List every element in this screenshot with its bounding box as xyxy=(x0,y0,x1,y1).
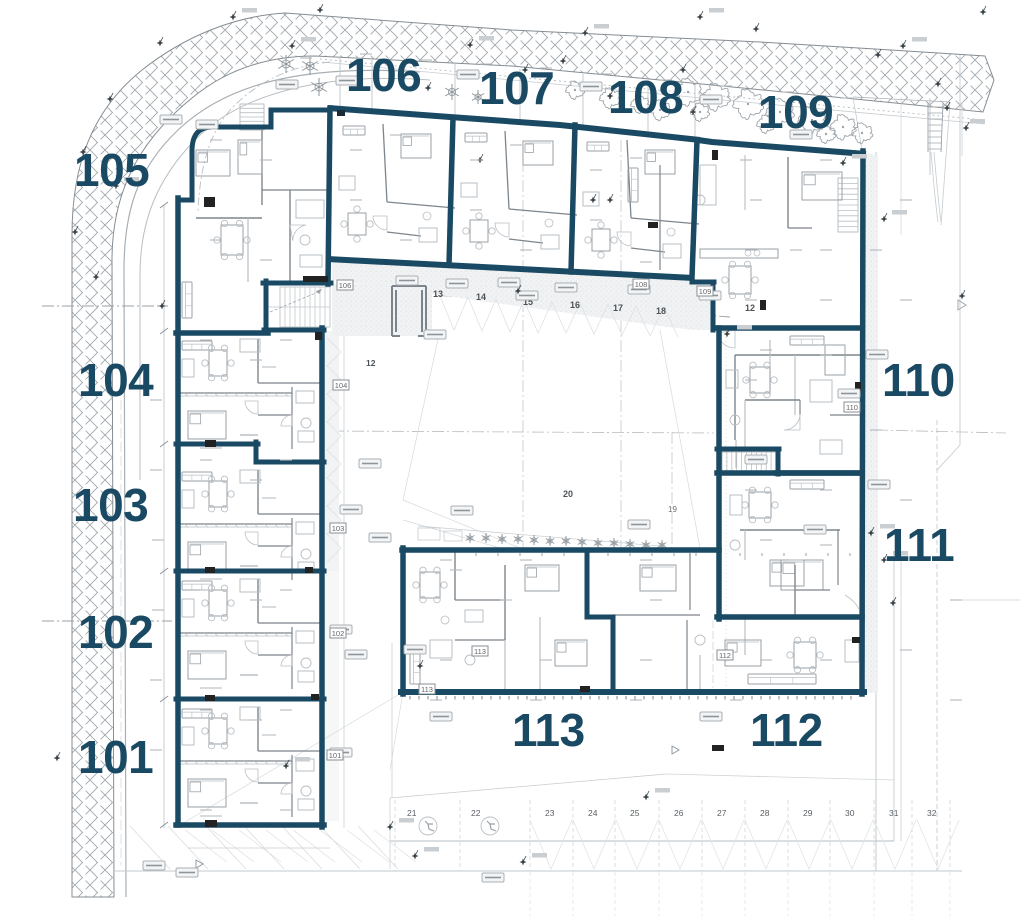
svg-text:113: 113 xyxy=(474,647,486,656)
svg-text:25: 25 xyxy=(630,808,640,818)
svg-text:108: 108 xyxy=(635,280,648,289)
svg-text:18: 18 xyxy=(656,306,666,316)
svg-text:103: 103 xyxy=(73,479,148,531)
svg-text:111: 111 xyxy=(884,519,954,571)
svg-text:113: 113 xyxy=(421,685,433,694)
svg-text:12: 12 xyxy=(745,303,755,313)
svg-text:24: 24 xyxy=(588,808,598,818)
svg-text:112: 112 xyxy=(750,704,823,756)
svg-text:109: 109 xyxy=(758,86,833,138)
svg-text:102: 102 xyxy=(78,606,153,658)
svg-text:23: 23 xyxy=(545,808,555,818)
svg-text:106: 106 xyxy=(339,281,352,290)
svg-text:113: 113 xyxy=(512,704,585,756)
svg-text:103: 103 xyxy=(332,524,345,533)
svg-text:112: 112 xyxy=(719,651,731,660)
svg-text:32: 32 xyxy=(927,808,937,818)
svg-text:109: 109 xyxy=(699,287,712,296)
svg-text:29: 29 xyxy=(803,808,813,818)
svg-text:30: 30 xyxy=(845,808,855,818)
svg-text:19: 19 xyxy=(668,505,677,514)
svg-text:104: 104 xyxy=(335,381,348,390)
svg-text:26: 26 xyxy=(674,808,684,818)
svg-text:27: 27 xyxy=(717,808,727,818)
svg-text:106: 106 xyxy=(346,49,421,101)
svg-text:101: 101 xyxy=(329,751,342,760)
svg-text:108: 108 xyxy=(608,71,683,123)
svg-text:20: 20 xyxy=(563,489,573,499)
svg-text:22: 22 xyxy=(471,808,481,818)
svg-text:14: 14 xyxy=(476,292,486,302)
svg-text:102: 102 xyxy=(332,629,345,638)
svg-text:12: 12 xyxy=(366,358,376,368)
svg-text:28: 28 xyxy=(760,808,770,818)
svg-text:16: 16 xyxy=(570,300,580,310)
svg-text:107: 107 xyxy=(479,62,554,114)
svg-text:21: 21 xyxy=(407,808,417,818)
svg-text:17: 17 xyxy=(613,303,623,313)
svg-text:31: 31 xyxy=(889,808,899,818)
svg-text:110: 110 xyxy=(846,403,858,412)
svg-text:101: 101 xyxy=(78,731,153,783)
svg-text:104: 104 xyxy=(78,354,154,406)
svg-text:13: 13 xyxy=(433,289,443,299)
svg-text:105: 105 xyxy=(74,144,149,196)
svg-text:110: 110 xyxy=(882,354,955,406)
